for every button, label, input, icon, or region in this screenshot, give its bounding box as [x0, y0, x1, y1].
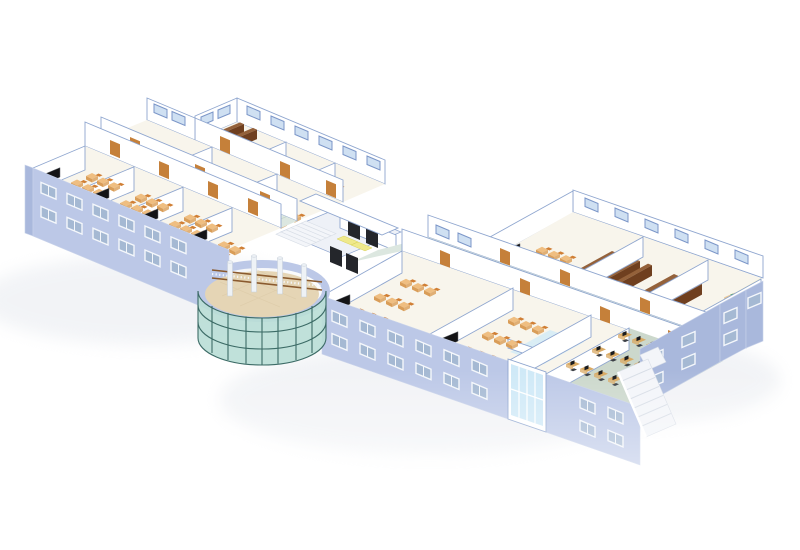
- facade-end-cap: [25, 165, 33, 236]
- ground-fade: [0, 370, 800, 550]
- isometric-building-svg: [0, 0, 800, 550]
- building-rendering-stage: [0, 0, 800, 550]
- east-end-cap: [746, 281, 763, 348]
